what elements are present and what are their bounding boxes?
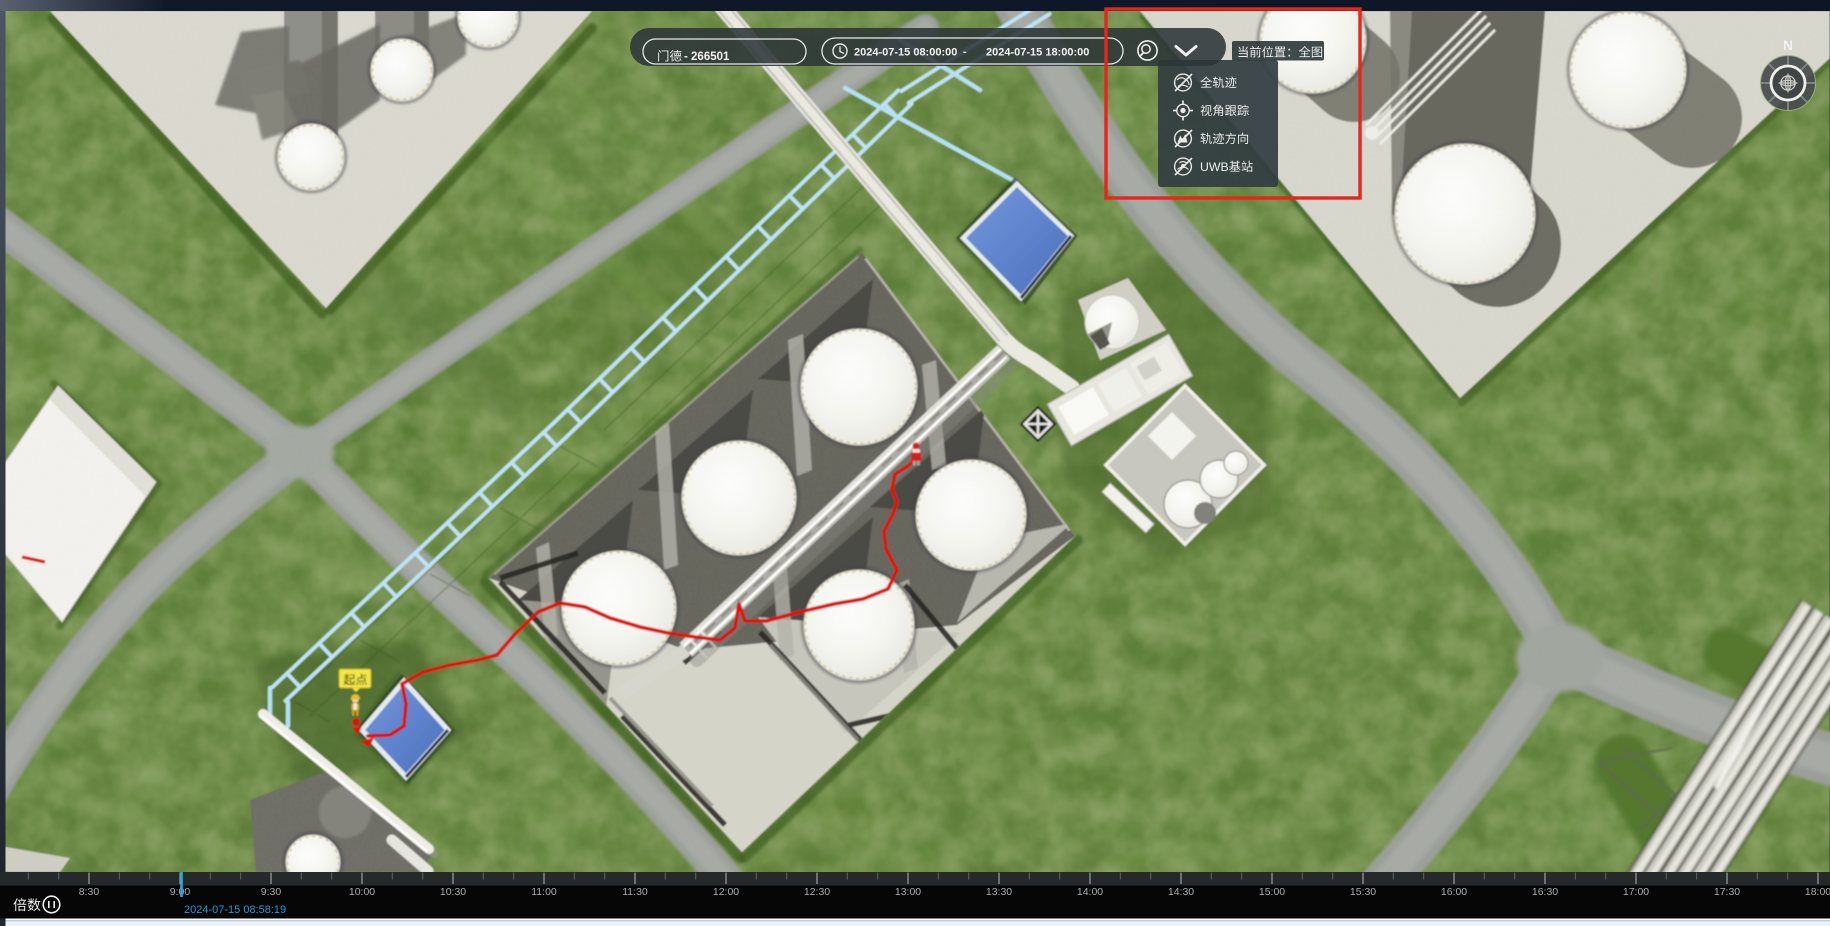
svg-text:14:30: 14:30 [1168,886,1194,898]
svg-text:16:30: 16:30 [1532,886,1558,898]
svg-text:UWB: UWB [1200,160,1229,174]
svg-text:13:30: 13:30 [986,886,1012,898]
svg-text:12:30: 12:30 [804,886,830,898]
svg-text:2024-07-15 08:00:00: 2024-07-15 08:00:00 [854,47,957,59]
svg-text:17:00: 17:00 [1623,886,1649,898]
svg-text:15:00: 15:00 [1259,886,1285,898]
svg-text:8:30: 8:30 [79,886,100,898]
svg-text:12:00: 12:00 [713,886,739,898]
svg-text:9:30: 9:30 [261,886,282,898]
svg-text:-: - [963,46,967,58]
svg-text:10:30: 10:30 [440,886,466,898]
svg-text:13:00: 13:00 [895,886,921,898]
svg-text:14:00: 14:00 [1077,886,1103,898]
svg-text:- 266501: - 266501 [684,51,730,63]
svg-text:17:30: 17:30 [1714,886,1740,898]
svg-text:2024-07-15 18:00:00: 2024-07-15 18:00:00 [986,47,1089,59]
svg-text:16:00: 16:00 [1441,886,1467,898]
svg-text:9:00: 9:00 [170,886,191,898]
svg-text:15:30: 15:30 [1350,886,1376,898]
svg-text:18:00: 18:00 [1805,886,1830,898]
svg-text:N: N [1783,38,1793,53]
svg-text:11:30: 11:30 [622,886,648,898]
svg-text:10:00: 10:00 [349,886,375,898]
svg-text:11:00: 11:00 [531,886,557,898]
svg-text:2024-07-15 08:58:19: 2024-07-15 08:58:19 [184,904,286,916]
